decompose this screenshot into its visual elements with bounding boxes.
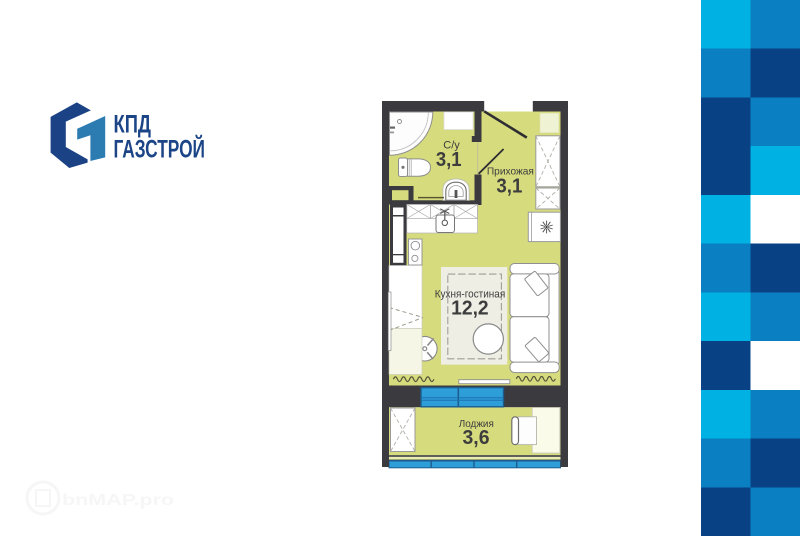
svg-text:3,1: 3,1	[496, 175, 522, 197]
svg-text:КПД: КПД	[114, 110, 152, 138]
svg-text:ГАЗСТРОЙ: ГАЗСТРОЙ	[114, 134, 206, 164]
svg-text:12,2: 12,2	[451, 297, 489, 319]
svg-text:bnMAP.pro: bnMAP.pro	[62, 492, 174, 509]
svg-text:3,6: 3,6	[463, 427, 490, 449]
svg-text:3,1: 3,1	[436, 149, 462, 171]
